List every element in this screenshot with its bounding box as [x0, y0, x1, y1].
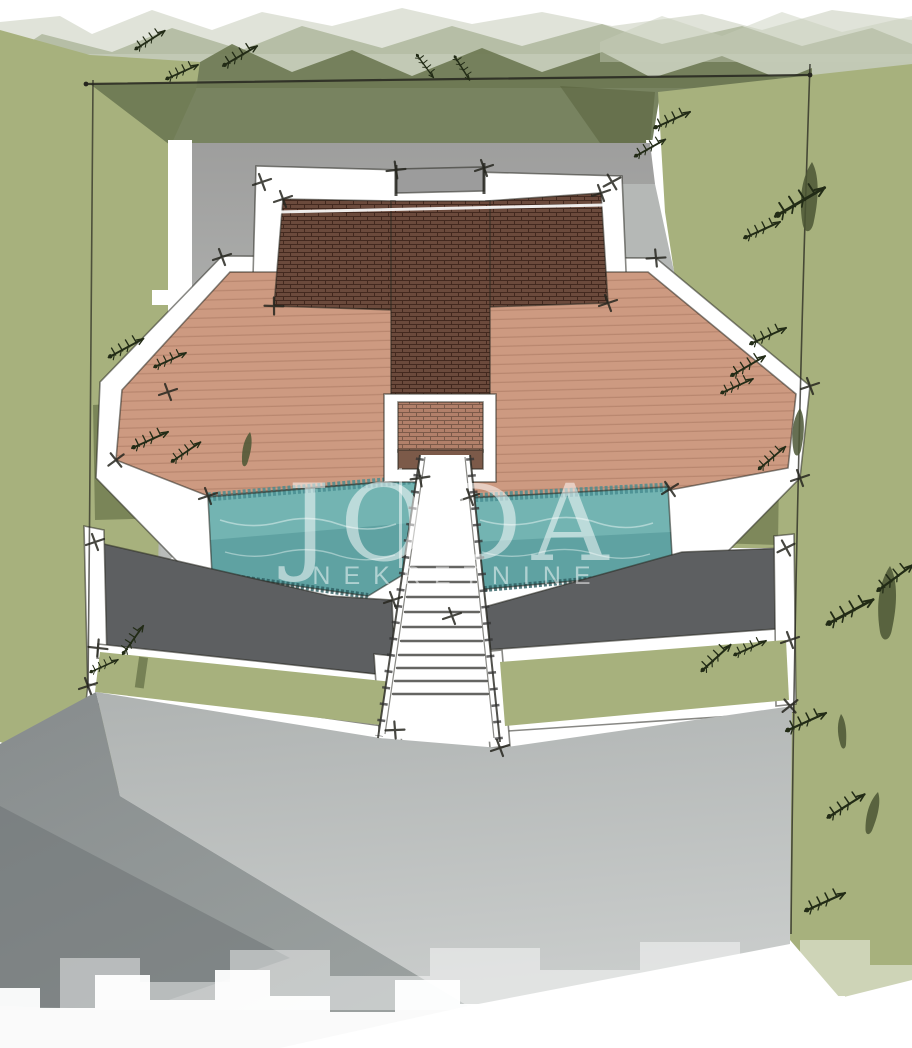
watermark-subtitle: NEKRETNINE [312, 562, 603, 590]
roof-ridge-bar [396, 167, 484, 193]
site-plan-rendering: JODA NEKRETNINE [0, 0, 912, 1048]
roof-center-column [391, 201, 490, 404]
site-plan-canvas: JODA NEKRETNINE [0, 0, 912, 1048]
roof-wing-right [486, 193, 608, 307]
watermark: JODA NEKRETNINE [279, 462, 619, 590]
unpainted-patch-1 [152, 290, 174, 305]
roof-wing-left [274, 199, 395, 310]
entry-roof-tiles [398, 402, 483, 452]
